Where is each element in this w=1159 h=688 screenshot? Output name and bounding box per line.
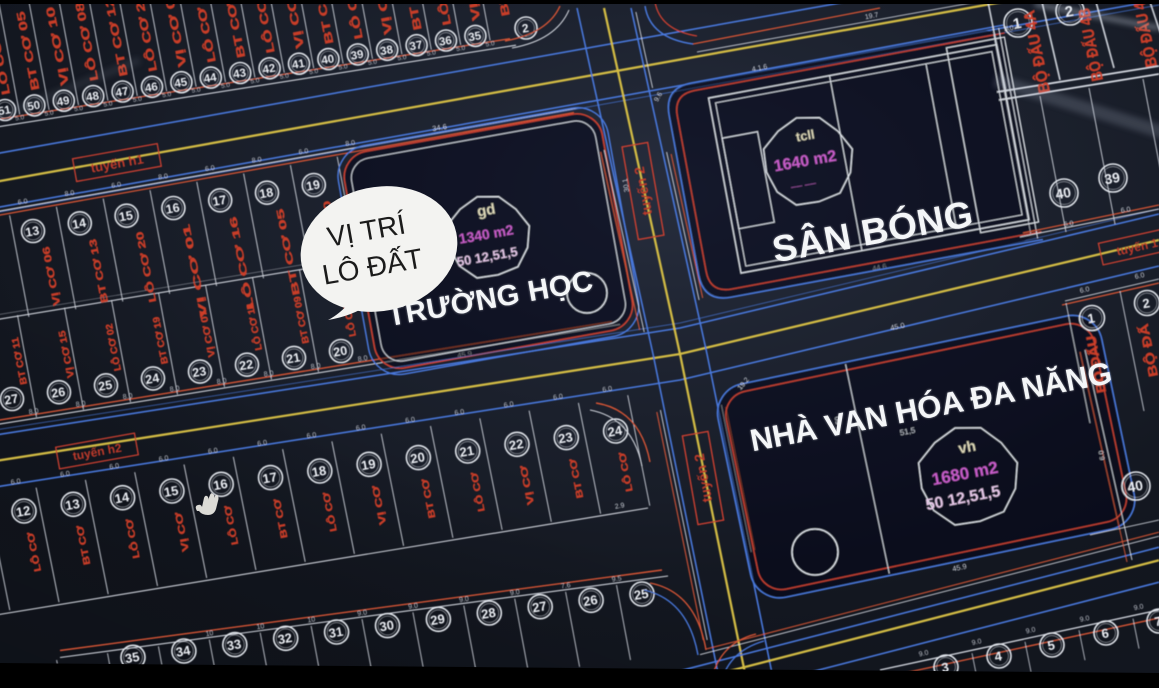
svg-text:18: 18 — [258, 185, 274, 201]
svg-text:25: 25 — [633, 586, 650, 603]
svg-text:17: 17 — [211, 193, 227, 209]
svg-text:28: 28 — [480, 605, 497, 622]
svg-text:5.0: 5.0 — [44, 109, 54, 117]
svg-text:10: 10 — [256, 623, 265, 631]
svg-text:16: 16 — [165, 200, 181, 216]
svg-text:39: 39 — [1103, 169, 1121, 187]
svg-text:39: 39 — [350, 49, 365, 63]
svg-text:5.0: 5.0 — [309, 68, 319, 76]
svg-text:23: 23 — [557, 429, 574, 446]
svg-text:15: 15 — [163, 483, 180, 500]
svg-text:46: 46 — [144, 81, 159, 95]
svg-text:5.0: 5.0 — [279, 72, 289, 80]
svg-text:26: 26 — [50, 385, 66, 401]
svg-text:22: 22 — [238, 357, 254, 373]
svg-text:21: 21 — [285, 350, 301, 366]
svg-text:40: 40 — [1126, 477, 1144, 495]
svg-text:5.0: 5.0 — [103, 100, 113, 108]
svg-text:26: 26 — [582, 592, 599, 609]
svg-text:10: 10 — [205, 630, 214, 638]
svg-text:5.0: 5.0 — [368, 59, 378, 67]
svg-text:40: 40 — [1054, 184, 1072, 202]
svg-text:5.0: 5.0 — [191, 86, 201, 94]
svg-text:20: 20 — [409, 449, 426, 466]
svg-text:24: 24 — [144, 371, 160, 387]
svg-text:5.0: 5.0 — [397, 54, 407, 62]
svg-text:10: 10 — [307, 616, 316, 624]
svg-text:30: 30 — [378, 617, 395, 634]
svg-text:33: 33 — [226, 636, 243, 653]
svg-text:36: 36 — [438, 35, 453, 49]
svg-text:5.0: 5.0 — [338, 63, 348, 71]
svg-text:5.0: 5.0 — [15, 114, 25, 122]
svg-text:37: 37 — [409, 39, 424, 53]
svg-text:29: 29 — [429, 611, 446, 628]
svg-text:5.0: 5.0 — [74, 105, 84, 113]
svg-text:5.0: 5.0 — [132, 96, 142, 104]
svg-text:5.0: 5.0 — [456, 45, 466, 53]
svg-text:13: 13 — [24, 223, 40, 239]
svg-text:27: 27 — [531, 598, 548, 615]
svg-text:23: 23 — [191, 364, 207, 380]
svg-text:15: 15 — [118, 208, 134, 224]
svg-text:35: 35 — [124, 649, 141, 666]
svg-text:14: 14 — [71, 216, 87, 232]
svg-text:17: 17 — [261, 469, 278, 486]
svg-text:5.0: 5.0 — [426, 49, 436, 57]
svg-text:42: 42 — [262, 63, 277, 77]
svg-text:gd: gd — [476, 201, 497, 221]
svg-text:18: 18 — [311, 463, 328, 480]
svg-text:13: 13 — [64, 496, 81, 513]
svg-text:21: 21 — [458, 443, 475, 460]
svg-text:5.0: 5.0 — [162, 91, 172, 99]
svg-text:43: 43 — [232, 67, 247, 81]
svg-text:vh: vh — [957, 438, 977, 458]
svg-text:12: 12 — [15, 503, 32, 520]
svg-text:27: 27 — [3, 391, 19, 407]
svg-text:32: 32 — [276, 630, 293, 647]
svg-text:16: 16 — [212, 476, 229, 493]
svg-text:40: 40 — [321, 53, 336, 67]
svg-text:31: 31 — [327, 624, 344, 641]
svg-text:5.0: 5.0 — [485, 40, 495, 48]
svg-text:25: 25 — [97, 378, 113, 394]
svg-text:5.0: 5.0 — [221, 82, 231, 90]
svg-text:19: 19 — [305, 177, 321, 193]
svg-text:22: 22 — [508, 436, 525, 453]
svg-text:19: 19 — [360, 456, 377, 473]
svg-text:20: 20 — [332, 343, 348, 359]
svg-text:5.0: 5.0 — [250, 77, 260, 85]
svg-text:47: 47 — [115, 86, 130, 100]
